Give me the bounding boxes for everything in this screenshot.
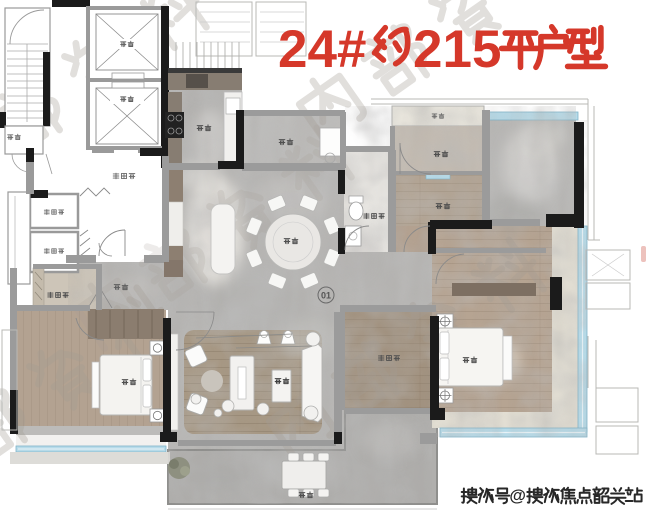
svg-text:01: 01 — [321, 291, 331, 301]
svg-text:@: @ — [509, 486, 526, 505]
svg-text:24#: 24# — [278, 20, 366, 79]
svg-text:215: 215 — [413, 20, 501, 79]
